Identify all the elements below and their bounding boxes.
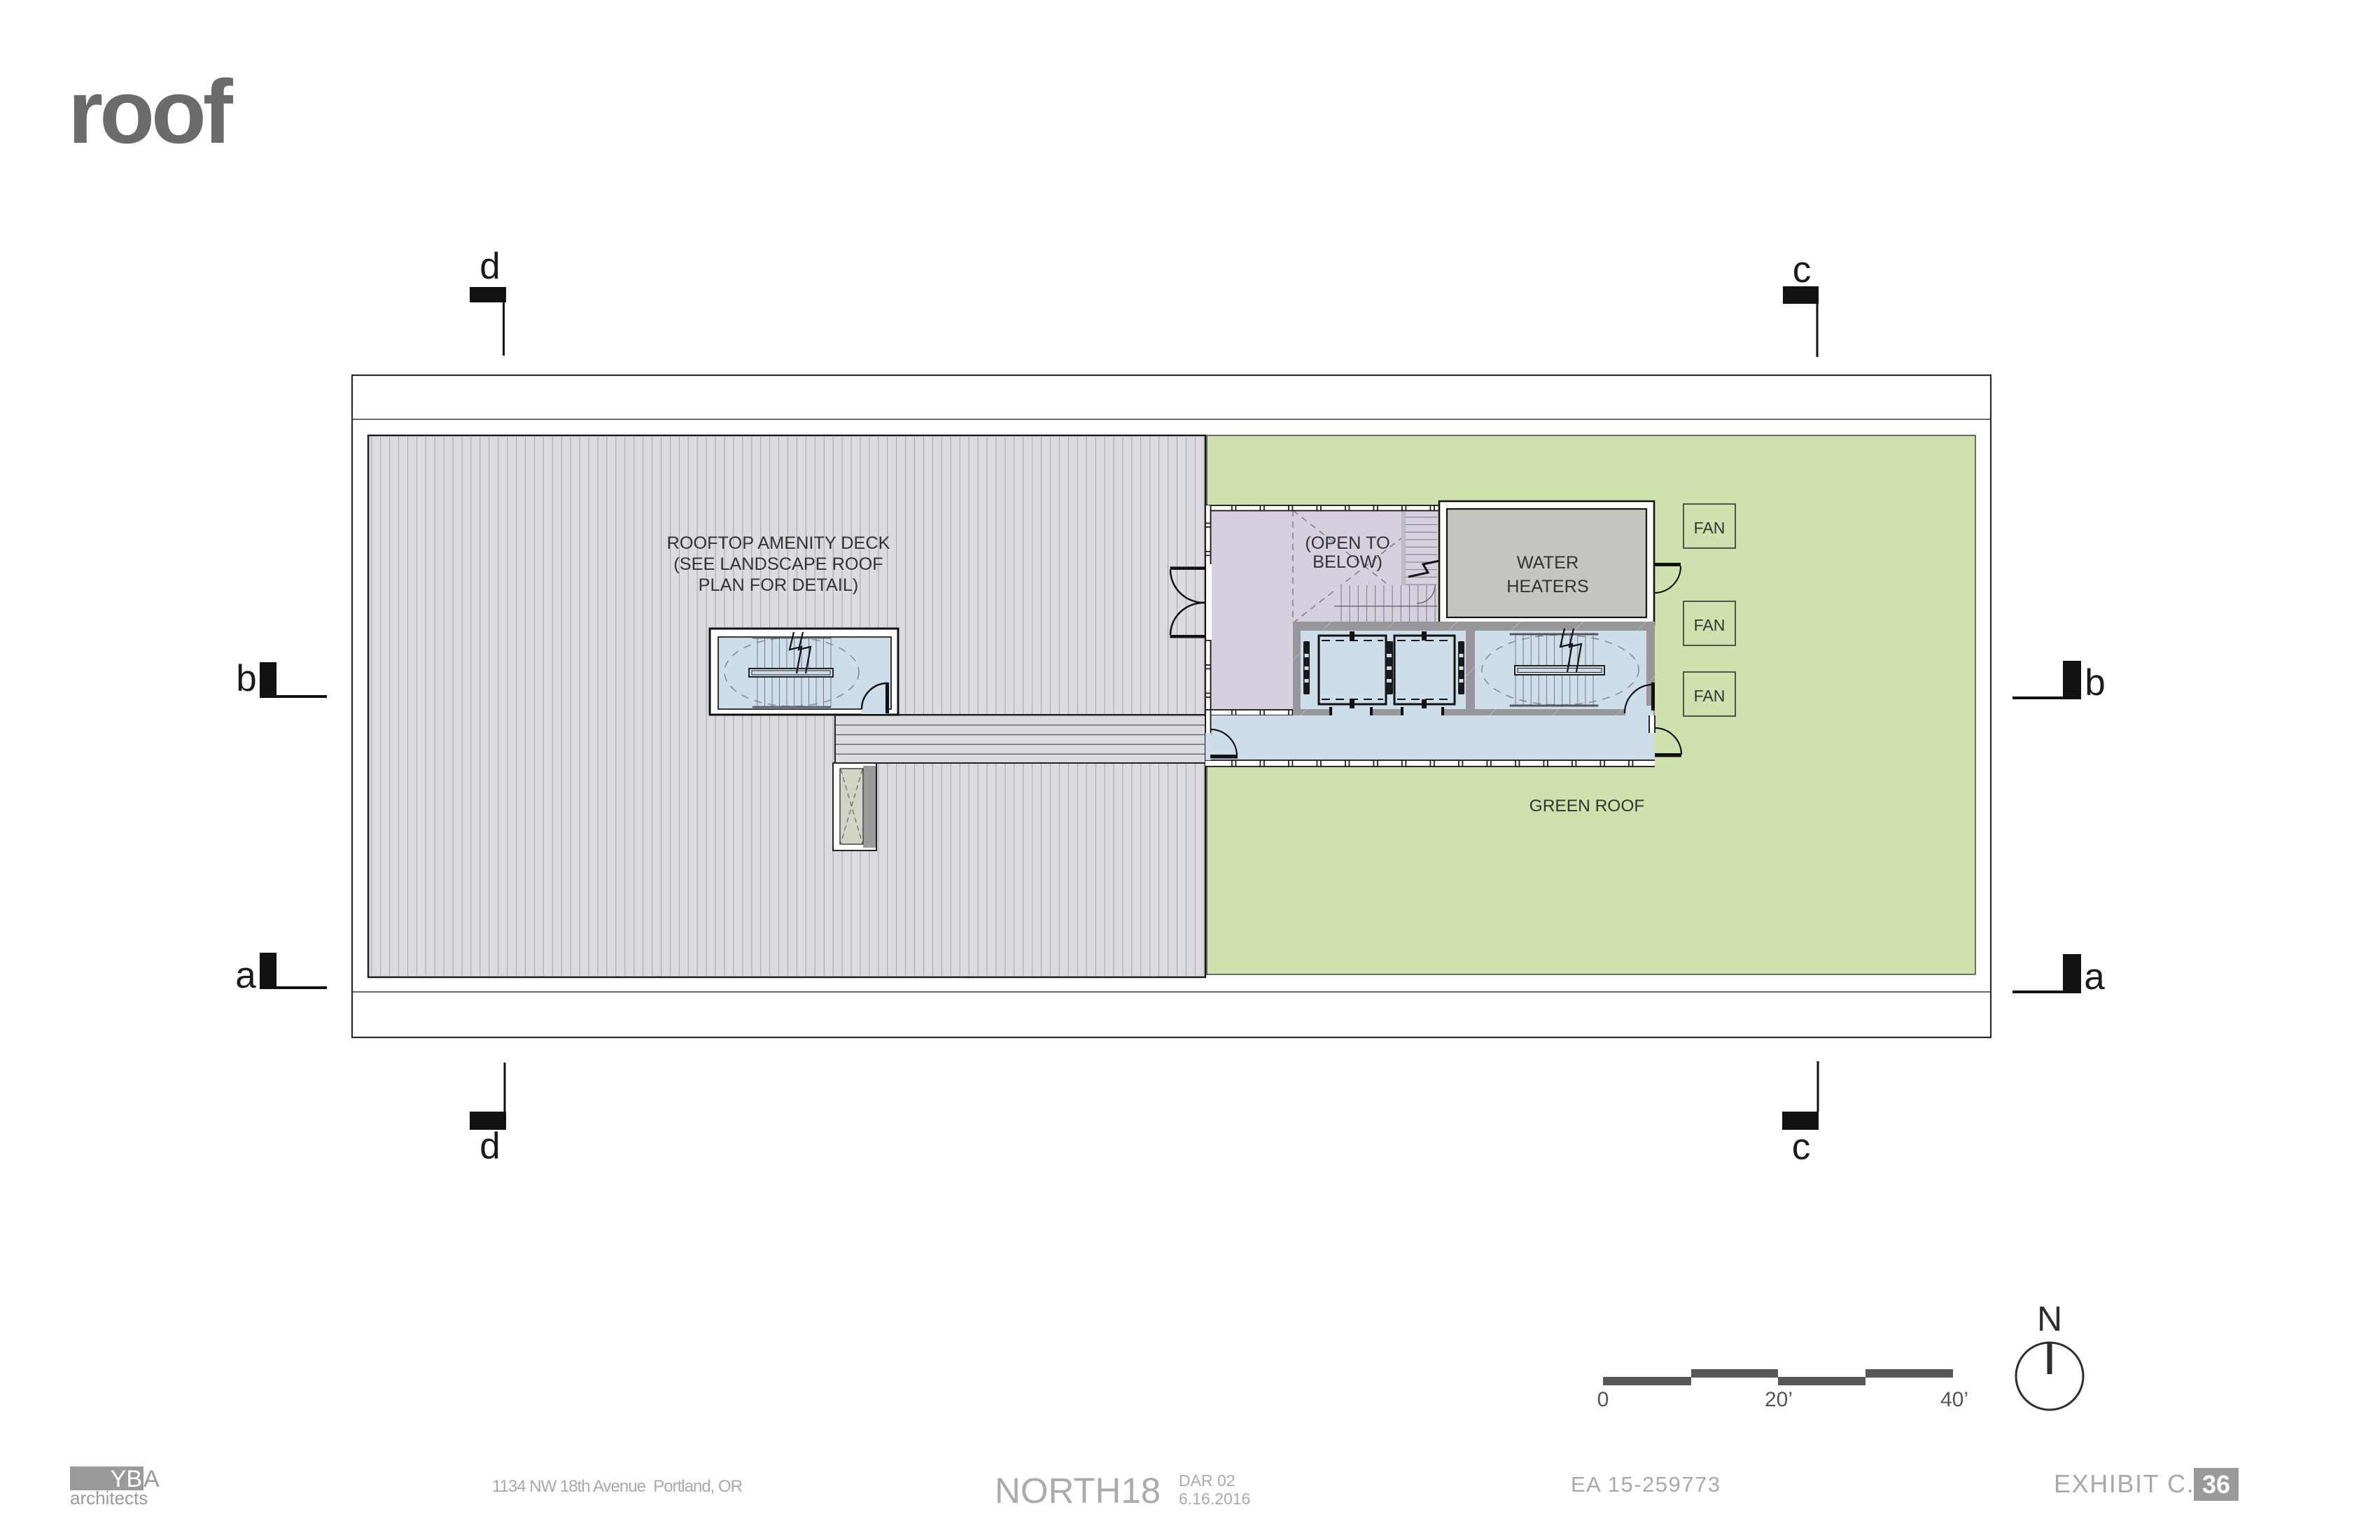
svg-text:FAN: FAN <box>1694 687 1725 705</box>
svg-text:EXHIBIT C.: EXHIBIT C. <box>2054 1469 2194 1498</box>
svg-text:N: N <box>2037 1299 2062 1338</box>
svg-text:d: d <box>479 1126 500 1167</box>
svg-text:GREEN ROOF: GREEN ROOF <box>1529 797 1645 815</box>
svg-text:c: c <box>1792 1126 1811 1168</box>
svg-text:FAN: FAN <box>1694 519 1725 537</box>
svg-text:b: b <box>236 658 256 699</box>
svg-text:FAN: FAN <box>1694 616 1725 634</box>
svg-text:NORTH18: NORTH18 <box>995 1471 1161 1511</box>
svg-text:HEATERS: HEATERS <box>1506 577 1589 596</box>
svg-text:DAR 02: DAR 02 <box>1179 1471 1235 1490</box>
svg-text:36: 36 <box>2202 1470 2230 1499</box>
svg-text:0: 0 <box>1597 1388 1609 1411</box>
svg-text:d: d <box>479 246 500 287</box>
svg-text:b: b <box>2085 662 2105 703</box>
svg-text:c: c <box>1793 249 1812 290</box>
svg-text:6.16.2016: 6.16.2016 <box>1179 1490 1250 1508</box>
svg-text:BELOW): BELOW) <box>1312 552 1382 572</box>
svg-text:roof: roof <box>68 62 234 162</box>
svg-text:PLAN FOR DETAIL): PLAN FOR DETAIL) <box>699 575 859 595</box>
svg-text:1134 NW 18th Avenue Portland,: 1134 NW 18th Avenue Portland, OR <box>492 1477 743 1496</box>
svg-text:architects: architects <box>70 1487 148 1508</box>
svg-text:a: a <box>2084 956 2105 997</box>
svg-text:EA 15-259773: EA 15-259773 <box>1571 1472 1721 1497</box>
svg-text:a: a <box>235 955 256 996</box>
svg-text:WATER: WATER <box>1517 553 1579 573</box>
svg-text:(SEE LANDSCAPE ROOF: (SEE LANDSCAPE ROOF <box>673 554 883 574</box>
svg-text:ROOFTOP AMENITY DECK: ROOFTOP AMENITY DECK <box>666 533 890 553</box>
svg-text:(OPEN TO: (OPEN TO <box>1305 533 1389 553</box>
svg-text:40’: 40’ <box>1940 1388 1968 1411</box>
svg-text:20’: 20’ <box>1765 1388 1793 1411</box>
